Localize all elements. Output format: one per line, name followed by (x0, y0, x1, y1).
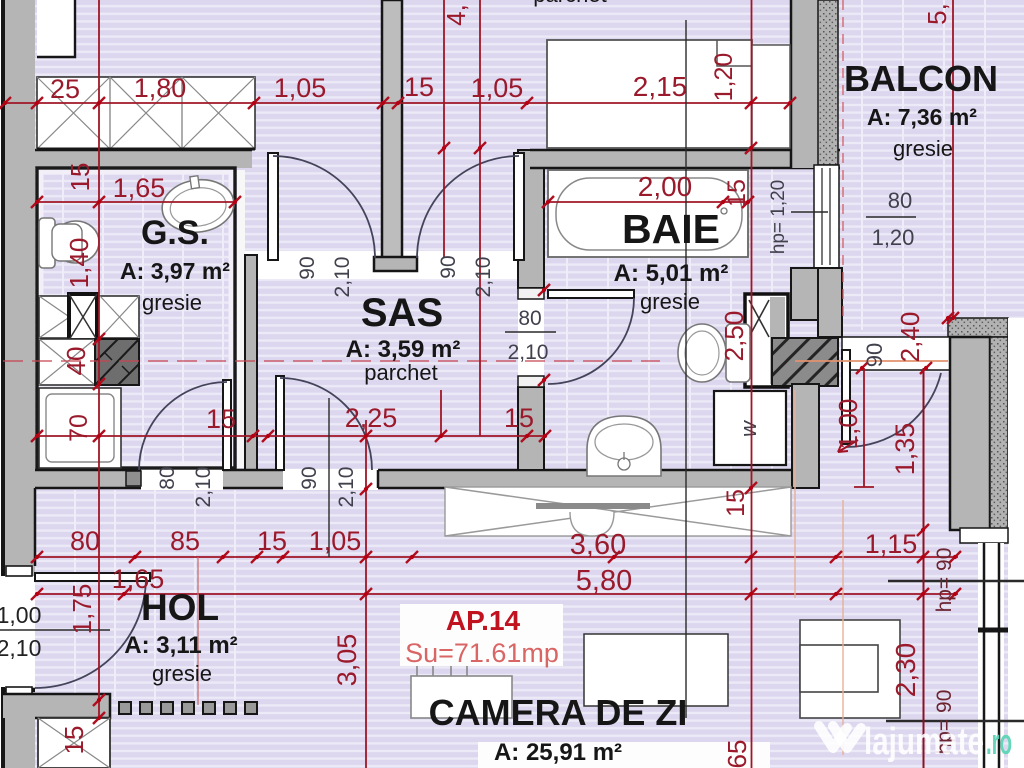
svg-text:gresie: gresie (893, 136, 953, 161)
svg-text:5,80: 5,80 (576, 565, 632, 597)
svg-text:2,10: 2,10 (192, 467, 215, 508)
svg-text:1,05: 1,05 (309, 526, 362, 556)
svg-text:1,15: 1,15 (865, 529, 918, 559)
svg-text:1,65: 1,65 (113, 173, 166, 203)
svg-text:80: 80 (518, 307, 541, 330)
svg-text:15: 15 (257, 526, 287, 556)
svg-text:gresie: gresie (640, 289, 700, 314)
svg-text:2,00: 2,00 (638, 171, 693, 202)
svg-text:CAMERA DE ZI: CAMERA DE ZI (429, 692, 688, 733)
svg-text:A: 7,36 m²: A: 7,36 m² (867, 104, 977, 130)
svg-text:90: 90 (296, 256, 319, 279)
svg-text:A: 25,91 m²: A: 25,91 m² (494, 739, 622, 766)
svg-text:HOL: HOL (141, 587, 219, 628)
svg-text:2,10: 2,10 (335, 467, 358, 508)
svg-text:BALCON: BALCON (844, 58, 998, 99)
svg-text:G.S.: G.S. (141, 214, 209, 252)
svg-text:w: w (736, 419, 761, 437)
svg-text:15: 15 (59, 726, 89, 755)
svg-text:80: 80 (156, 466, 179, 489)
svg-text:65: 65 (722, 740, 752, 768)
svg-text:90: 90 (862, 343, 887, 367)
svg-text:90: 90 (437, 255, 460, 278)
svg-text:15: 15 (504, 403, 534, 433)
svg-text:BAIE: BAIE (622, 206, 720, 252)
svg-text:1,20: 1,20 (710, 53, 738, 102)
svg-text:Su=71.61mp: Su=71.61mp (405, 638, 559, 668)
svg-text:A: 5,01 m²: A: 5,01 m² (614, 260, 729, 287)
svg-text:hp= 90: hp= 90 (933, 548, 956, 613)
svg-text:25: 25 (50, 74, 80, 104)
svg-text:1,00: 1,00 (833, 399, 863, 450)
svg-text:15: 15 (722, 489, 750, 517)
svg-text:90: 90 (298, 466, 321, 489)
svg-text:15: 15 (723, 179, 751, 207)
svg-text:hp= 1,20: hp= 1,20 (768, 180, 789, 255)
svg-text:A: 3,97 m²: A: 3,97 m² (120, 258, 230, 284)
svg-text:80: 80 (888, 188, 912, 213)
svg-text:3,60: 3,60 (570, 529, 626, 561)
svg-text:2,50: 2,50 (719, 311, 749, 362)
svg-text:2,25: 2,25 (345, 403, 398, 433)
svg-text:1,20: 1,20 (872, 225, 915, 250)
svg-text:85: 85 (170, 526, 200, 556)
svg-text:4,: 4, (441, 4, 471, 26)
svg-text:5,: 5, (922, 3, 952, 25)
svg-text:2,10: 2,10 (331, 257, 354, 298)
svg-text:1,80: 1,80 (134, 73, 187, 103)
svg-text:2,10: 2,10 (508, 341, 549, 364)
svg-text:1,05: 1,05 (274, 73, 327, 103)
svg-text:15: 15 (206, 404, 236, 434)
svg-text:2,10: 2,10 (472, 257, 495, 298)
svg-text:70: 70 (65, 414, 93, 442)
svg-text:1,05: 1,05 (471, 73, 524, 103)
svg-text:SAS: SAS (361, 291, 443, 335)
svg-text:lajumate: lajumate (864, 721, 984, 763)
svg-text:1,00: 1,00 (0, 602, 41, 628)
svg-text:.ro: .ro (986, 721, 1012, 762)
svg-text:40: 40 (61, 347, 91, 376)
svg-text:2,30: 2,30 (890, 643, 921, 698)
svg-text:3,05: 3,05 (332, 634, 362, 687)
svg-text:15: 15 (404, 72, 434, 102)
svg-text:2,40: 2,40 (895, 312, 925, 363)
svg-text:A: 3,59 m²: A: 3,59 m² (346, 336, 461, 363)
svg-text:gresie: gresie (142, 290, 202, 315)
svg-text:A: 3,11 m²: A: 3,11 m² (124, 632, 237, 659)
svg-text:gresie: gresie (152, 661, 212, 686)
svg-text:15: 15 (65, 163, 95, 192)
svg-text:parchet: parchet (364, 360, 437, 385)
svg-text:1,35: 1,35 (890, 423, 920, 476)
svg-text:AP.14: AP.14 (446, 605, 521, 636)
svg-text:2,15: 2,15 (633, 71, 688, 102)
svg-text:1,40: 1,40 (64, 238, 94, 289)
svg-text:parchet: parchet (533, 0, 606, 7)
svg-text:2,10: 2,10 (0, 635, 41, 661)
svg-text:1,75: 1,75 (67, 584, 97, 635)
svg-text:80: 80 (70, 526, 100, 556)
